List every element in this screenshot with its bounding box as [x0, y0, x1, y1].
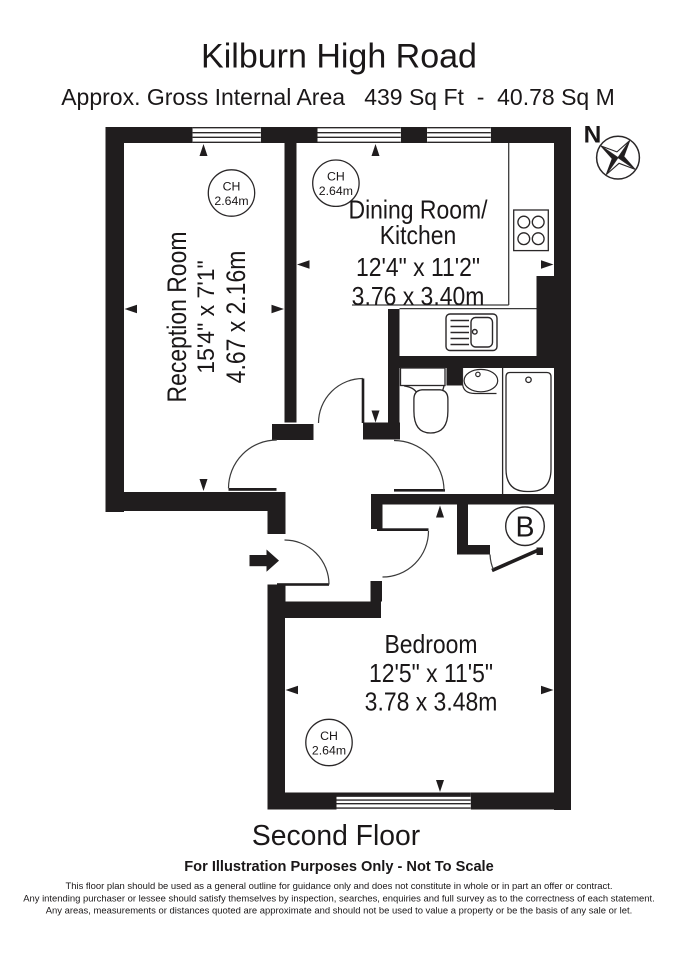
- svg-text:3.78 x 3.48m: 3.78 x 3.48m: [365, 688, 498, 716]
- svg-text:2.64m: 2.64m: [312, 744, 346, 758]
- svg-text:Kitchen: Kitchen: [380, 222, 457, 250]
- svg-text:Dining Room/: Dining Room/: [349, 197, 488, 225]
- svg-text:4.67 x 2.16m: 4.67 x 2.16m: [221, 251, 251, 384]
- svg-text:15'4" x 7'1": 15'4" x 7'1": [192, 260, 220, 373]
- svg-text:3.76 x 3.40m: 3.76 x 3.40m: [352, 283, 485, 311]
- svg-text:Kilburn High Road: Kilburn High Road: [201, 38, 477, 76]
- svg-text:Second Floor: Second Floor: [252, 819, 420, 851]
- svg-text:CH: CH: [327, 170, 345, 184]
- svg-text:Approx. Gross Internal Area: Approx. Gross Internal Area 439 Sq Ft - …: [61, 84, 615, 110]
- svg-text:This floor plan should be used: This floor plan should be used as a gene…: [65, 881, 612, 892]
- svg-text:2.64m: 2.64m: [214, 194, 248, 208]
- svg-text:B: B: [515, 511, 534, 543]
- svg-text:Any areas, measurements or dis: Any areas, measurements or distances quo…: [46, 906, 633, 917]
- svg-text:CH: CH: [320, 729, 338, 743]
- svg-text:CH: CH: [223, 179, 241, 193]
- svg-text:For Illustration Purposes Only: For Illustration Purposes Only - Not To …: [184, 859, 493, 875]
- svg-text:12'4" x 11'2": 12'4" x 11'2": [356, 254, 480, 282]
- svg-text:N: N: [584, 122, 602, 149]
- svg-text:Bedroom: Bedroom: [384, 631, 477, 659]
- svg-text:12'5" x 11'5": 12'5" x 11'5": [369, 660, 493, 688]
- svg-text:Any intending purchaser or les: Any intending purchaser or lessee should…: [23, 894, 655, 905]
- svg-text:Reception Room: Reception Room: [162, 232, 192, 403]
